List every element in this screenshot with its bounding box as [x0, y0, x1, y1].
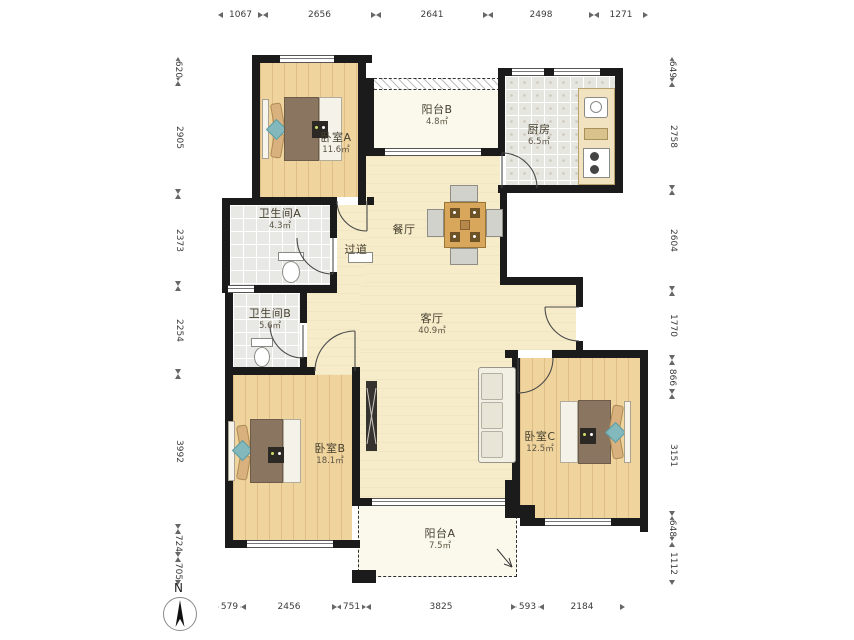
wall [222, 198, 252, 205]
dimension-left-3: 2254 [171, 286, 185, 374]
nightstand-icon [268, 447, 284, 463]
hallway-cabinet-icon [348, 252, 373, 263]
table-center-icon [460, 220, 470, 230]
dimension-top-3: 2498 [488, 8, 594, 22]
balcony-b-open-edge [374, 78, 500, 90]
wall [300, 285, 307, 323]
wall [367, 197, 374, 205]
dimension-left-6: 705 [171, 557, 185, 585]
wall [498, 185, 623, 193]
dimension-right-0: 649 [665, 57, 679, 82]
window [554, 68, 600, 76]
dimension-right-6: 648 [665, 516, 679, 541]
dimension-bottom-1: 2456 [241, 600, 337, 614]
wall [505, 350, 518, 358]
toilet-tank-icon [251, 338, 273, 347]
window [512, 68, 544, 76]
wall [352, 570, 376, 583]
dimension-right-7: 1112 [665, 542, 679, 585]
chair-icon [486, 209, 503, 237]
bed-b-bench-icon [283, 419, 301, 483]
dimension-bottom-0: 579 [218, 600, 241, 614]
sofa-cushion-icon [481, 431, 503, 458]
dimension-top-4: 1271 [594, 8, 648, 22]
floor-plan: 卧室A 11.6㎡ 阳台B 4.8㎡ 厨房 6.5㎡ 卫生间A 4.3㎡ 过道 … [0, 0, 854, 640]
window-bay [545, 518, 611, 526]
wall [366, 78, 374, 156]
dimension-right-1: 2758 [665, 82, 679, 190]
burner-icon [590, 165, 599, 174]
dimension-bottom-3: 3825 [366, 600, 516, 614]
dimension-top-2: 2641 [376, 8, 488, 22]
room-balcony-a-floor [358, 506, 517, 577]
toilet-bowl-icon [254, 347, 270, 367]
bed-c-bench-icon [560, 401, 578, 463]
wall [252, 197, 337, 205]
window-bay [247, 540, 333, 548]
burner-icon [590, 152, 599, 161]
wall [615, 68, 623, 193]
place-setting-icon [450, 232, 460, 242]
wall [640, 350, 648, 532]
bed-c-headboard-icon [624, 401, 631, 463]
toilet-tank-icon [278, 252, 304, 261]
wall [576, 285, 583, 307]
dimension-top-1: 2656 [263, 8, 376, 22]
place-setting-icon [450, 208, 460, 218]
wall [352, 367, 360, 506]
tv-cabinet-icon [366, 381, 377, 451]
dimension-left-2: 2373 [171, 194, 185, 286]
wall [358, 55, 366, 205]
chair-icon [450, 185, 478, 202]
room-bathroom-a-floor [230, 205, 330, 285]
window-sliding-door [385, 148, 481, 156]
wall [225, 285, 233, 375]
wall [498, 76, 505, 150]
dimension-left-4: 3992 [171, 374, 185, 529]
chair-icon [427, 209, 444, 237]
cutting-board-icon [584, 128, 608, 140]
window [228, 285, 254, 293]
room-hallway-floor-2 [307, 293, 337, 375]
wall [225, 367, 315, 375]
window-sliding-door [372, 498, 505, 506]
nightstand-icon [312, 121, 328, 138]
sink-basin-icon [590, 101, 602, 113]
wall [252, 55, 260, 205]
sofa-cushion-icon [481, 402, 503, 429]
dimension-left-5: 724 [171, 529, 185, 557]
dimension-right-5: 3151 [665, 394, 679, 516]
place-setting-icon [470, 208, 480, 218]
wall [552, 350, 648, 358]
nightstand-icon [580, 428, 596, 444]
room-living-floor-upper [360, 283, 576, 350]
dimension-left-1: 2905 [171, 81, 185, 194]
dimension-bottom-4: 593 [516, 600, 539, 614]
window [280, 55, 334, 63]
place-setting-icon [470, 232, 480, 242]
sofa-cushion-icon [481, 373, 503, 400]
wall [222, 198, 230, 293]
dimension-right-2: 2604 [665, 190, 679, 291]
room-balcony-b-floor [374, 88, 498, 148]
dimension-top-0: 1067 [218, 8, 263, 22]
dimension-right-3: 1770 [665, 291, 679, 360]
toilet-bowl-icon [282, 261, 300, 283]
wall [500, 277, 583, 285]
dimension-right-4: 866 [665, 360, 679, 394]
dimension-bottom-2: 751 [337, 600, 366, 614]
dimension-left-0: 620 [171, 57, 185, 81]
wall [330, 198, 337, 238]
wall [505, 505, 535, 518]
dimension-bottom-5: 2184 [539, 600, 625, 614]
chair-icon [450, 248, 478, 265]
